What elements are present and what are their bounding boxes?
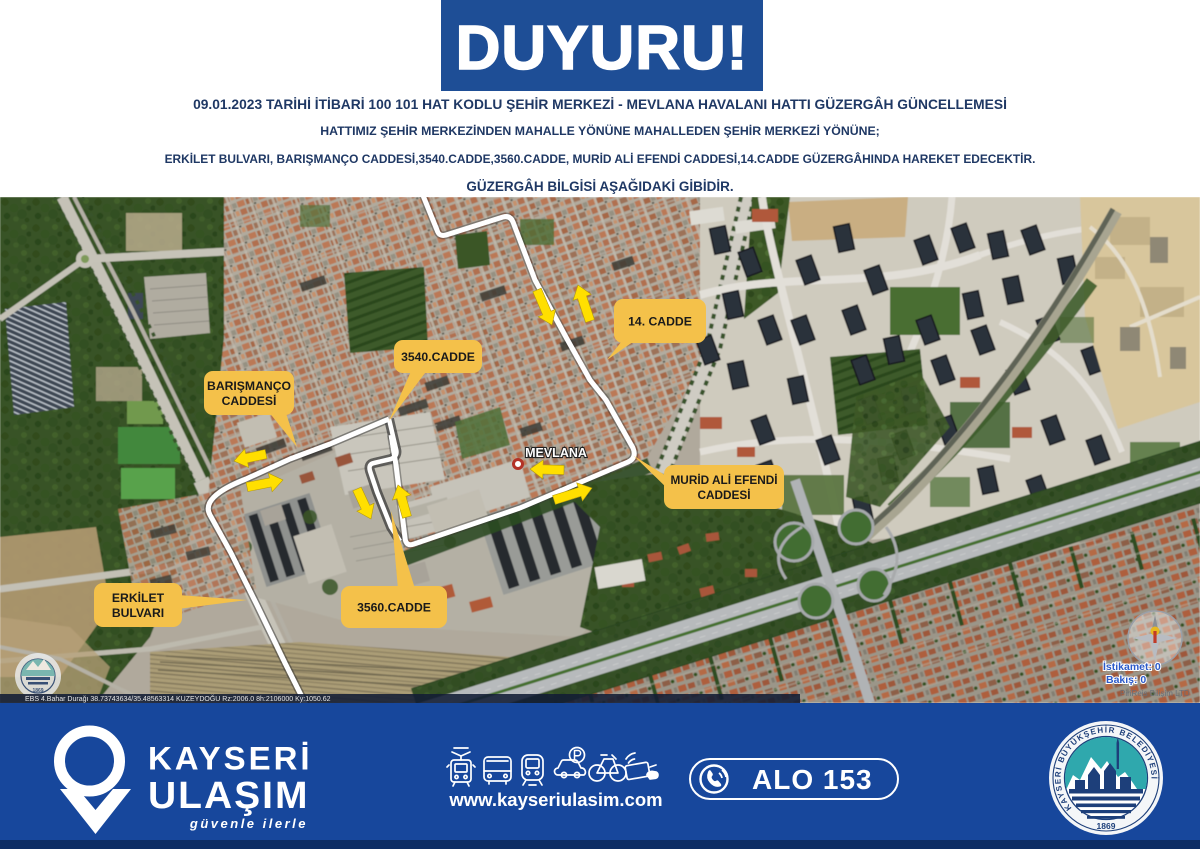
svg-text:güvenle ilerle: güvenle ilerle	[189, 816, 308, 831]
svg-text:ALO 153: ALO 153	[752, 764, 873, 795]
svg-text:ULAŞIM: ULAŞIM	[148, 774, 309, 817]
svg-text:BULVARI: BULVARI	[112, 606, 164, 620]
svg-text:www.kayseriulasim.com: www.kayseriulasim.com	[448, 789, 662, 810]
svg-text:KAYSERİ: KAYSERİ	[148, 740, 313, 777]
svg-text:Bakış: 0: Bakış: 0	[1106, 674, 1146, 686]
svg-text:14. CADDE: 14. CADDE	[628, 315, 692, 329]
svg-text:İstikamet: 0: İstikamet: 0	[1103, 660, 1161, 673]
svg-text:CADDESİ: CADDESİ	[697, 488, 750, 502]
svg-text:MEVLANA: MEVLANA	[525, 446, 587, 460]
svg-text:1869: 1869	[1097, 821, 1116, 831]
svg-text:3540.CADDE: 3540.CADDE	[401, 350, 475, 364]
svg-text:CADDESİ: CADDESİ	[222, 393, 277, 408]
svg-text:PiriReis Bilişim LTD: PiriReis Bilişim LTD	[1120, 689, 1190, 698]
svg-text:1869: 1869	[32, 688, 43, 694]
svg-text:ERKİLET: ERKİLET	[112, 590, 165, 605]
svg-text:BARIŞMANÇO: BARIŞMANÇO	[207, 379, 291, 393]
svg-text:EBS 4.Bahar Durağı 38.7: EBS 4.Bahar Durağı 38.73743634/35.485633…	[25, 694, 331, 703]
svg-text:MURİD ALİ EFENDİ: MURİD ALİ EFENDİ	[670, 473, 777, 487]
svg-text:3560.CADDE: 3560.CADDE	[357, 601, 431, 615]
